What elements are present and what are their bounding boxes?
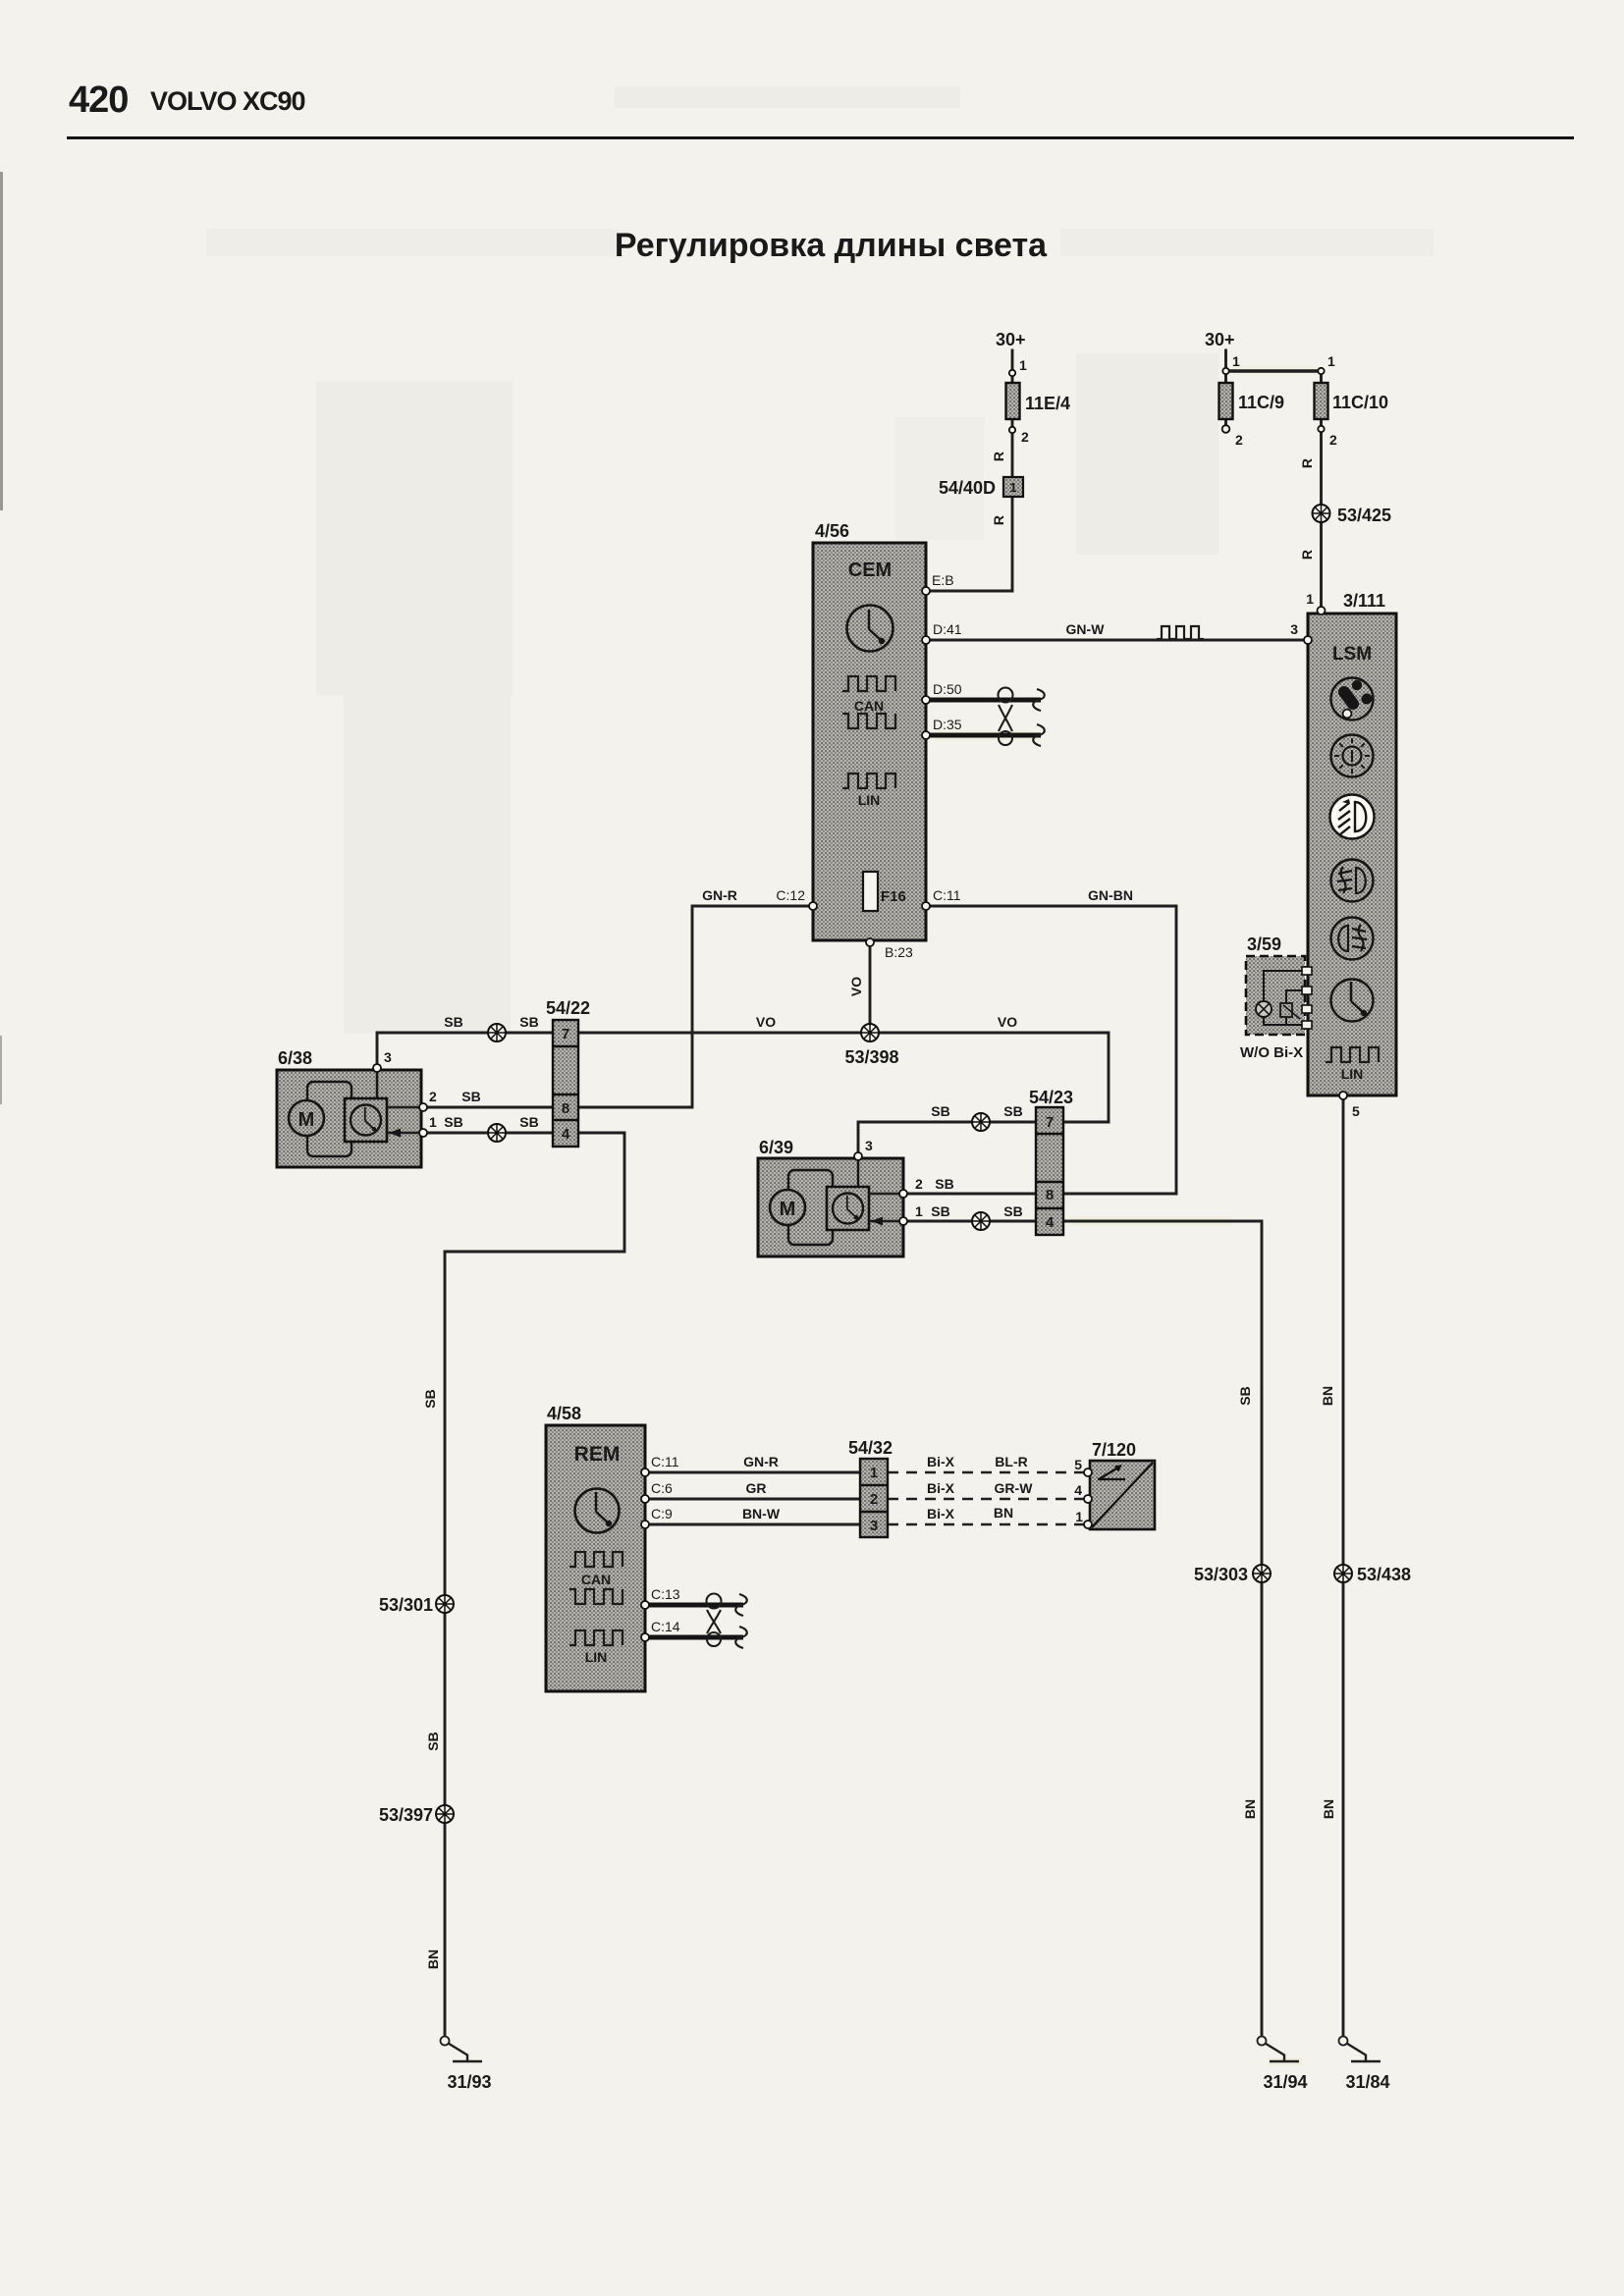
svg-text:VO: VO — [998, 1014, 1017, 1030]
svg-text:2: 2 — [1329, 432, 1337, 448]
svg-text:3: 3 — [1290, 621, 1298, 637]
svg-text:VO: VO — [756, 1014, 776, 1030]
svg-text:BN: BN — [1242, 1799, 1258, 1819]
svg-text:C:6: C:6 — [651, 1480, 673, 1496]
svg-text:GN-BN: GN-BN — [1088, 887, 1133, 903]
svg-text:VO: VO — [848, 977, 864, 996]
svg-text:D:35: D:35 — [933, 717, 962, 732]
svg-text:R: R — [1299, 458, 1315, 468]
svg-text:E:B: E:B — [932, 572, 954, 588]
svg-text:1: 1 — [915, 1203, 923, 1219]
svg-text:CEM: CEM — [848, 560, 892, 581]
svg-text:1: 1 — [870, 1465, 878, 1481]
svg-text:C:14: C:14 — [651, 1619, 680, 1634]
svg-text:Bi-X: Bi-X — [927, 1454, 955, 1469]
svg-text:54/23: 54/23 — [1029, 1088, 1073, 1107]
svg-text:3/59: 3/59 — [1247, 934, 1281, 954]
svg-text:54/40D: 54/40D — [939, 478, 996, 498]
svg-text:1: 1 — [1327, 353, 1335, 369]
svg-text:5: 5 — [1074, 1457, 1082, 1472]
svg-text:SB: SB — [519, 1014, 538, 1030]
svg-text:8: 8 — [562, 1100, 569, 1117]
svg-text:31/93: 31/93 — [447, 2072, 491, 2092]
svg-text:2: 2 — [1235, 432, 1243, 448]
svg-text:C:13: C:13 — [651, 1586, 680, 1602]
svg-text:BN: BN — [425, 1949, 441, 1969]
svg-text:BL-R: BL-R — [995, 1454, 1027, 1469]
svg-text:3/111: 3/111 — [1343, 591, 1385, 611]
svg-text:30+: 30+ — [996, 330, 1026, 349]
svg-text:BN: BN — [994, 1505, 1013, 1521]
svg-text:6/38: 6/38 — [278, 1048, 312, 1068]
svg-text:SB: SB — [1003, 1103, 1022, 1119]
svg-text:Bi-X: Bi-X — [927, 1480, 955, 1496]
svg-text:53/398: 53/398 — [844, 1047, 898, 1067]
svg-text:SB: SB — [461, 1089, 480, 1104]
svg-text:CAN: CAN — [854, 698, 884, 714]
svg-text:4/58: 4/58 — [547, 1404, 581, 1423]
svg-text:SB: SB — [519, 1114, 538, 1130]
svg-text:BN: BN — [1320, 1386, 1335, 1406]
svg-text:D:50: D:50 — [933, 681, 962, 697]
svg-text:BN: BN — [1321, 1799, 1336, 1819]
svg-text:W/O Bi-X: W/O Bi-X — [1240, 1044, 1303, 1061]
svg-text:2: 2 — [915, 1176, 923, 1192]
svg-text:VOLVO XC90: VOLVO XC90 — [150, 86, 305, 116]
svg-text:53/303: 53/303 — [1194, 1565, 1248, 1584]
svg-text:7/120: 7/120 — [1092, 1440, 1136, 1460]
svg-text:LSM: LSM — [1332, 644, 1372, 665]
svg-text:BN-W: BN-W — [742, 1506, 781, 1522]
svg-text:SB: SB — [1003, 1203, 1022, 1219]
svg-text:53/425: 53/425 — [1337, 506, 1391, 525]
svg-text:LIN: LIN — [1341, 1066, 1364, 1082]
svg-text:6/39: 6/39 — [759, 1138, 793, 1157]
svg-text:11C/10: 11C/10 — [1332, 393, 1388, 412]
svg-text:420: 420 — [69, 80, 128, 121]
svg-text:SB: SB — [444, 1014, 462, 1030]
svg-text:1: 1 — [1232, 353, 1240, 369]
svg-text:11E/4: 11E/4 — [1025, 394, 1070, 413]
svg-text:4/56: 4/56 — [815, 521, 849, 541]
svg-text:SB: SB — [422, 1389, 438, 1408]
svg-text:7: 7 — [562, 1026, 569, 1042]
svg-text:53/397: 53/397 — [379, 1805, 433, 1825]
svg-text:1: 1 — [1009, 480, 1016, 495]
svg-text:3: 3 — [384, 1049, 392, 1065]
svg-text:GN-R: GN-R — [702, 887, 737, 903]
svg-text:3: 3 — [870, 1518, 878, 1534]
svg-text:M: M — [298, 1109, 315, 1131]
svg-text:B:23: B:23 — [885, 944, 913, 960]
svg-text:4: 4 — [1046, 1214, 1055, 1231]
svg-text:SB: SB — [935, 1176, 953, 1192]
svg-text:SB: SB — [1237, 1386, 1253, 1405]
svg-text:4: 4 — [1074, 1482, 1082, 1498]
svg-text:5: 5 — [1352, 1103, 1360, 1119]
svg-text:CAN: CAN — [581, 1572, 611, 1587]
svg-text:C:9: C:9 — [651, 1506, 673, 1522]
svg-text:2: 2 — [870, 1491, 878, 1508]
svg-text:F16: F16 — [881, 888, 906, 905]
svg-text:2: 2 — [429, 1089, 437, 1104]
svg-text:7: 7 — [1046, 1114, 1054, 1131]
svg-text:1: 1 — [1075, 1509, 1083, 1524]
svg-text:R: R — [991, 452, 1006, 461]
svg-text:1: 1 — [1306, 591, 1314, 607]
svg-text:8: 8 — [1046, 1187, 1054, 1203]
svg-text:1: 1 — [429, 1114, 437, 1130]
svg-text:4: 4 — [562, 1126, 570, 1143]
svg-text:GN-R: GN-R — [743, 1454, 779, 1469]
svg-text:Bi-X: Bi-X — [927, 1506, 955, 1522]
svg-text:D:41: D:41 — [933, 621, 962, 637]
svg-text:SB: SB — [931, 1203, 949, 1219]
svg-text:31/84: 31/84 — [1345, 2072, 1389, 2092]
svg-text:GN-W: GN-W — [1066, 621, 1106, 637]
svg-text:53/301: 53/301 — [379, 1595, 433, 1615]
svg-text:54/32: 54/32 — [848, 1438, 893, 1458]
svg-text:C:11: C:11 — [933, 887, 961, 903]
svg-text:2: 2 — [1021, 429, 1029, 445]
svg-text:REM: REM — [574, 1443, 621, 1466]
svg-text:31/94: 31/94 — [1263, 2072, 1307, 2092]
svg-text:GR: GR — [746, 1480, 767, 1496]
svg-text:Регулировка длины света: Регулировка длины света — [615, 227, 1048, 264]
svg-text:53/438: 53/438 — [1357, 1565, 1411, 1584]
svg-text:30+: 30+ — [1205, 330, 1235, 349]
svg-text:11C/9: 11C/9 — [1238, 393, 1284, 412]
svg-text:LIN: LIN — [585, 1649, 608, 1665]
svg-text:SB: SB — [931, 1103, 949, 1119]
svg-text:R: R — [991, 515, 1006, 525]
svg-text:1: 1 — [1019, 357, 1027, 373]
svg-text:SB: SB — [425, 1732, 441, 1750]
svg-text:SB: SB — [444, 1114, 462, 1130]
svg-text:R: R — [1299, 550, 1315, 560]
svg-text:M: M — [780, 1199, 796, 1220]
svg-text:C:11: C:11 — [651, 1454, 679, 1469]
svg-text:3: 3 — [865, 1138, 873, 1153]
svg-text:LIN: LIN — [858, 792, 881, 808]
svg-text:GR-W: GR-W — [995, 1480, 1034, 1496]
svg-text:C:12: C:12 — [776, 887, 805, 903]
svg-text:54/22: 54/22 — [546, 998, 590, 1018]
